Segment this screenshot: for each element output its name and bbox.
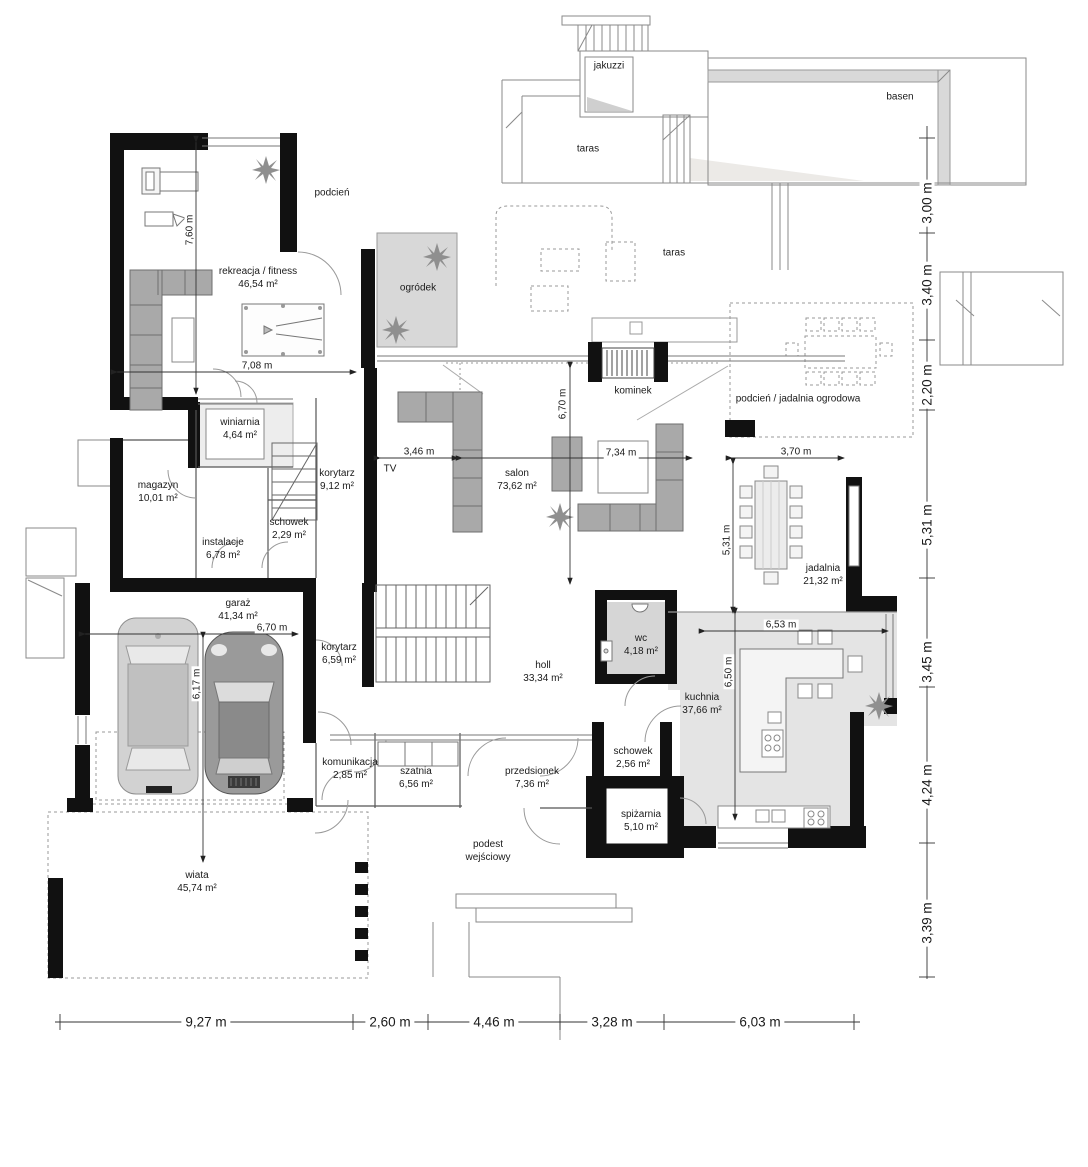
zone-label-tv: TV xyxy=(384,463,397,476)
garden-dining-table xyxy=(805,336,876,368)
dim-right-339: 3,39 m xyxy=(920,899,935,946)
zone-label-taras-1: taras xyxy=(577,143,599,156)
room-label-schowek-1: schowek 2,29 m² xyxy=(270,516,309,542)
dim-right-345: 3,45 m xyxy=(920,638,935,685)
room-label-garaz: garaż 41,34 m² xyxy=(218,597,257,623)
wiata-boundary xyxy=(48,812,368,978)
floor-plan-page: jakuzzi basen taras taras ogródek podcie… xyxy=(0,0,1088,1167)
room-label-instalacje: instalacje 6,78 m² xyxy=(202,536,244,562)
dim-right-340: 3,40 m xyxy=(920,261,935,308)
floor-plan-drawing xyxy=(0,0,1088,1167)
fireplace xyxy=(602,348,654,378)
room-label-wiata: wiata 45,74 m² xyxy=(177,869,216,895)
zone-label-ogrodek: ogródek xyxy=(400,282,436,295)
room-label-korytarz-1: korytarz 9,12 m² xyxy=(319,467,355,493)
zone-label-podcien: podcień xyxy=(314,187,349,200)
room-label-magazyn: magazyn 10,01 m² xyxy=(138,479,179,505)
room-label-przedsionek: przedsionek 7,36 m² xyxy=(505,765,559,791)
dim-right-220: 2,20 m xyxy=(920,361,935,408)
dim-internal-617: 6,17 m xyxy=(192,667,203,702)
zone-label-taras-2: taras xyxy=(663,247,685,260)
room-label-jadalnia: jadalnia 21,32 m² xyxy=(803,562,842,588)
garden-structure xyxy=(940,272,1063,365)
dim-bottom-446: 4,46 m xyxy=(469,1015,518,1030)
zone-label-kominek: kominek xyxy=(614,385,651,398)
zone-label-jakuzzi: jakuzzi xyxy=(594,60,625,73)
pool-rim-top xyxy=(708,70,950,82)
dim-internal-531: 5,31 m xyxy=(722,523,733,558)
dim-internal-670b: 6,70 m xyxy=(255,623,290,634)
dim-right-300: 3,00 m xyxy=(920,179,935,226)
zone-label-podest: podest wejściowy xyxy=(452,838,524,864)
dim-internal-670a: 6,70 m xyxy=(558,387,569,422)
room-label-komunikacja: komunikacja 2,85 m² xyxy=(322,756,378,782)
wardrobe xyxy=(378,742,458,766)
taras-sofa-outline xyxy=(496,206,612,286)
dining-table xyxy=(740,466,802,584)
dim-internal-760: 7,60 m xyxy=(185,213,196,248)
dim-bottom-927: 9,27 m xyxy=(181,1015,230,1030)
zone-label-basen: basen xyxy=(886,91,913,104)
jakuzzi-shadow xyxy=(587,97,632,111)
dim-internal-734: 7,34 m xyxy=(604,448,639,459)
room-label-holl: holl 33,34 m² xyxy=(523,659,562,685)
sideboard xyxy=(552,437,582,491)
room-label-wc: wc 4,18 m² xyxy=(624,632,658,658)
dim-internal-346: 3,46 m xyxy=(402,447,437,458)
dim-right-531: 5,31 m xyxy=(920,501,935,548)
room-label-kuchnia: kuchnia 37,66 m² xyxy=(682,691,721,717)
tv-panel xyxy=(367,443,373,495)
dim-right-424: 4,24 m xyxy=(920,761,935,808)
dim-internal-708: 7,08 m xyxy=(240,361,275,372)
dim-internal-650: 6,50 m xyxy=(724,655,735,690)
room-label-winiarnia: winiarnia 4,64 m² xyxy=(220,416,259,442)
room-label-salon: salon 73,62 m² xyxy=(497,467,536,493)
room-label-korytarz-2: korytarz 6,59 m² xyxy=(321,641,357,667)
dim-bottom-328: 3,28 m xyxy=(587,1015,636,1030)
pool-shadow-wedge xyxy=(690,158,864,181)
dim-internal-370: 3,70 m xyxy=(779,447,814,458)
car-sports xyxy=(205,632,283,794)
dim-bottom-260: 2,60 m xyxy=(365,1015,414,1030)
dim-bottom-603: 6,03 m xyxy=(735,1015,784,1030)
coffee-table xyxy=(172,318,194,362)
jadalnia-window xyxy=(849,486,859,566)
car-suv xyxy=(118,618,198,794)
room-label-fitness: rekreacja / fitness 46,54 m² xyxy=(219,265,297,291)
plant-icon xyxy=(252,156,280,184)
dim-internal-653: 6,53 m xyxy=(764,620,799,631)
pool-rim-right xyxy=(938,70,950,185)
room-label-schowek-2: schowek 2,56 m² xyxy=(614,745,653,771)
zone-label-podcien-jadalnia: podcień / jadalnia ogrodowa xyxy=(736,393,861,406)
room-label-spizarnia: spiżarnia 5,10 m² xyxy=(621,808,661,834)
room-label-szatnia: szatnia 6,56 m² xyxy=(399,765,433,791)
pool-table xyxy=(242,304,324,356)
